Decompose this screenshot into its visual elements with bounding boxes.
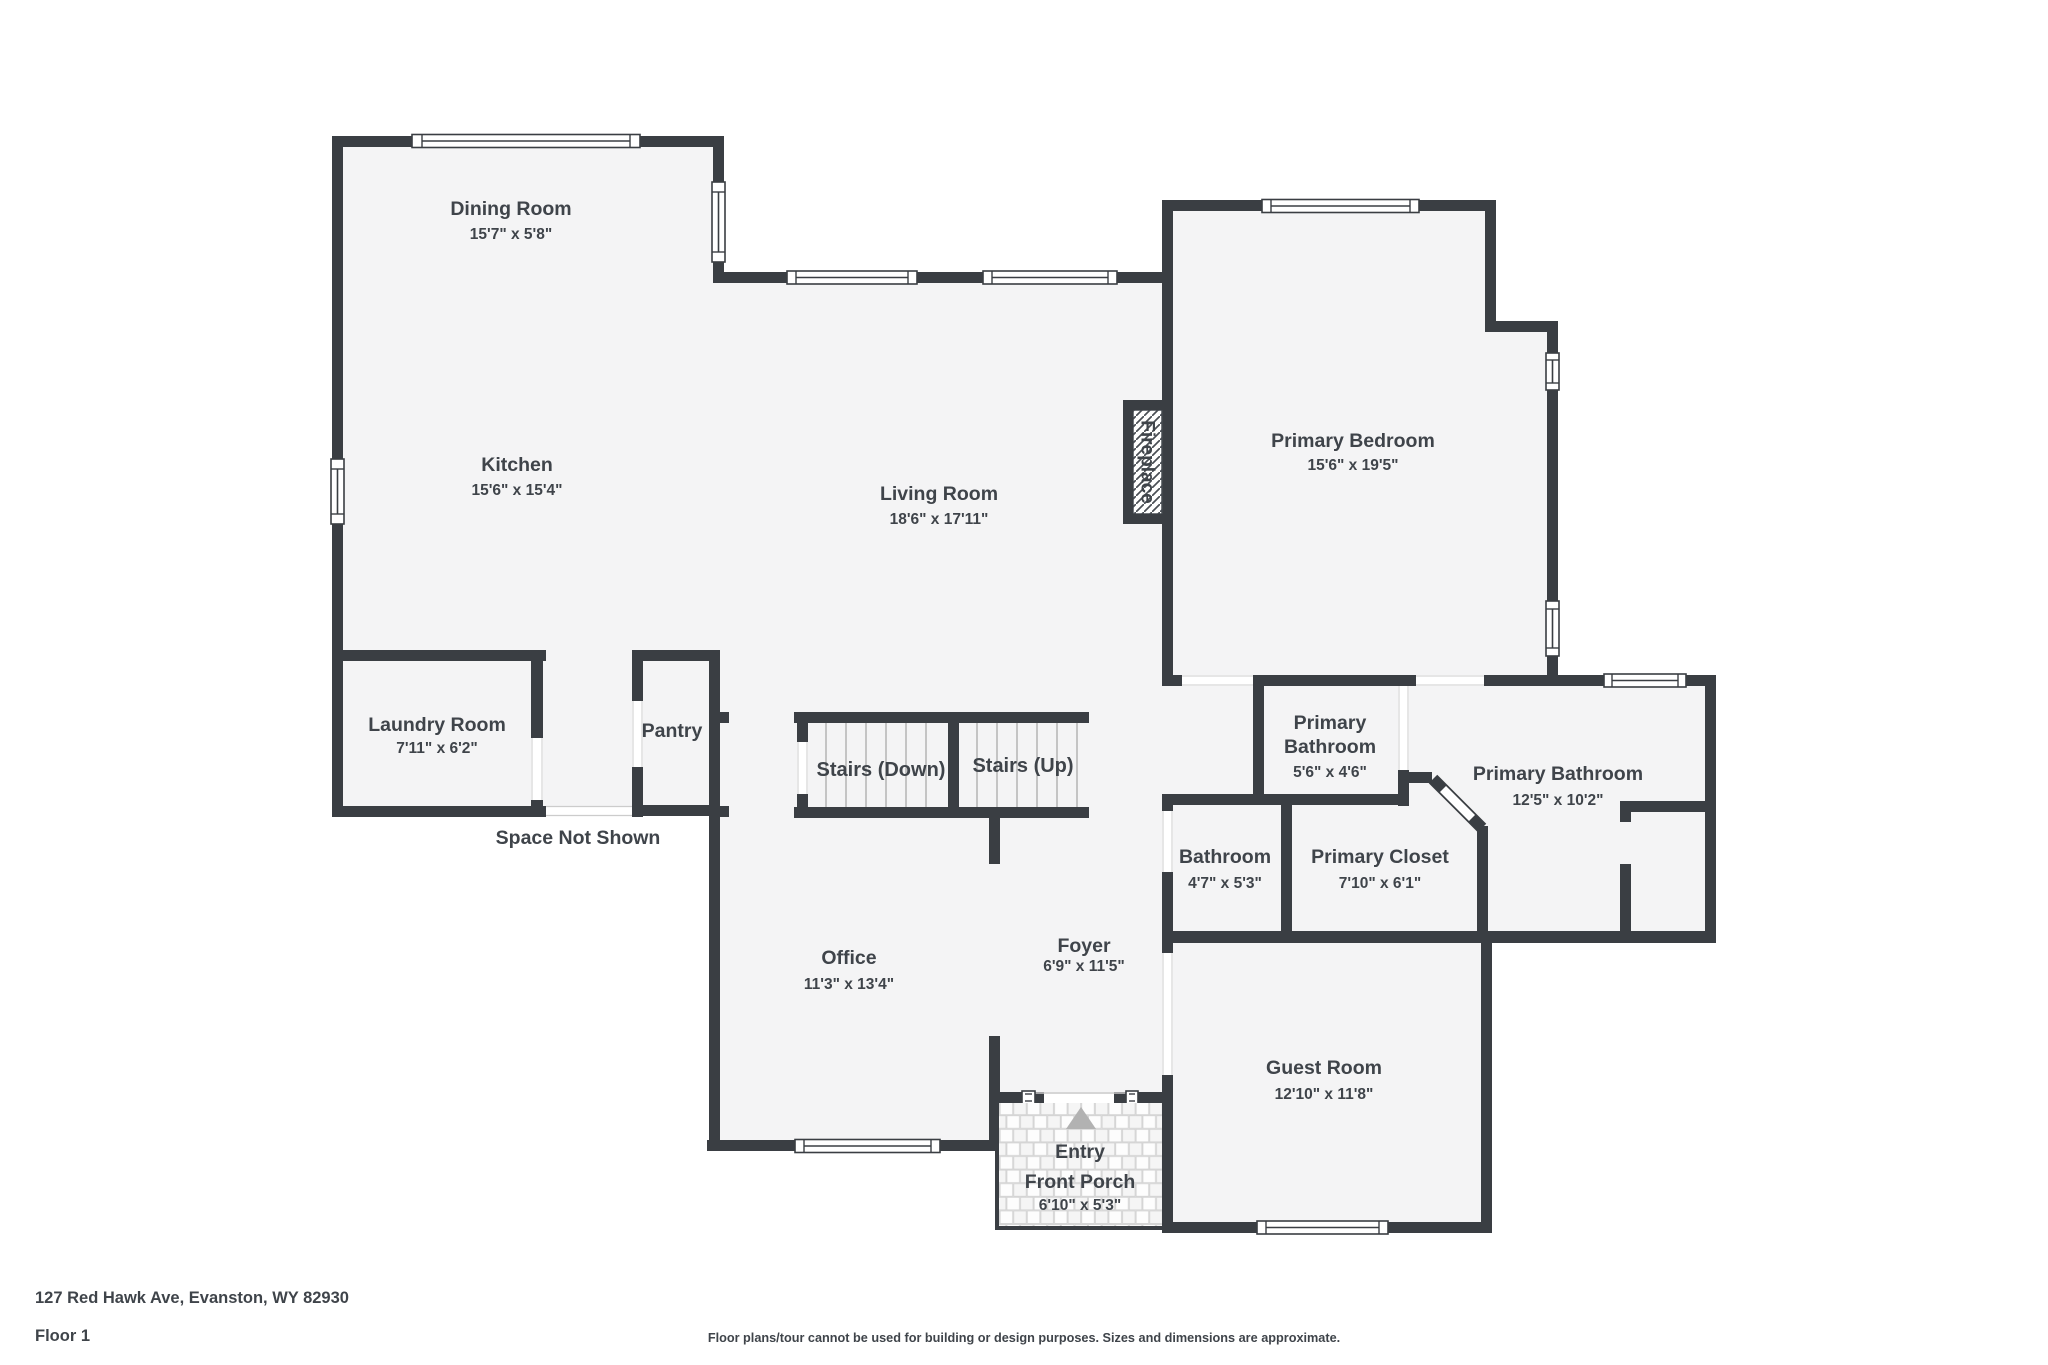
- svg-text:Living Room: Living Room: [880, 483, 998, 505]
- svg-text:Primary: Primary: [1294, 712, 1367, 734]
- svg-text:Primary Bathroom: Primary Bathroom: [1473, 763, 1643, 785]
- svg-text:7'11" x 6'2": 7'11" x 6'2": [396, 740, 478, 757]
- svg-text:7'10" x 6'1": 7'10" x 6'1": [1339, 875, 1421, 892]
- svg-text:15'6" x 19'5": 15'6" x 19'5": [1307, 457, 1398, 474]
- svg-text:Dining Room: Dining Room: [450, 198, 571, 220]
- svg-text:Pantry: Pantry: [642, 720, 703, 742]
- svg-text:Stairs (Down): Stairs (Down): [817, 759, 946, 781]
- svg-text:Space Not Shown: Space Not Shown: [496, 827, 661, 849]
- svg-text:6'10" x 5'3": 6'10" x 5'3": [1039, 1197, 1121, 1214]
- svg-text:Bathroom: Bathroom: [1284, 736, 1376, 758]
- svg-text:Fireplace: Fireplace: [1137, 420, 1158, 503]
- svg-text:12'5" x 10'2": 12'5" x 10'2": [1512, 792, 1603, 809]
- svg-text:Guest Room: Guest Room: [1266, 1057, 1382, 1079]
- svg-text:Primary Bedroom: Primary Bedroom: [1271, 430, 1435, 452]
- svg-text:12'10" x 11'8": 12'10" x 11'8": [1275, 1086, 1374, 1103]
- svg-text:Foyer: Foyer: [1057, 935, 1111, 957]
- svg-text:Bathroom: Bathroom: [1179, 846, 1271, 868]
- svg-text:11'3" x 13'4": 11'3" x 13'4": [804, 976, 894, 993]
- svg-text:Front Porch: Front Porch: [1025, 1171, 1136, 1193]
- svg-text:Entry: Entry: [1055, 1141, 1105, 1163]
- svg-text:6'9" x 11'5": 6'9" x 11'5": [1043, 958, 1125, 975]
- svg-text:5'6" x 4'6": 5'6" x 4'6": [1293, 764, 1367, 781]
- svg-text:Floor 1: Floor 1: [35, 1327, 90, 1345]
- svg-text:Office: Office: [821, 947, 876, 969]
- svg-text:4'7" x 5'3": 4'7" x 5'3": [1188, 875, 1262, 892]
- svg-text:Kitchen: Kitchen: [481, 454, 553, 476]
- svg-text:15'6" x 15'4": 15'6" x 15'4": [471, 482, 562, 499]
- svg-text:18'6" x 17'11": 18'6" x 17'11": [890, 511, 989, 528]
- svg-text:Floor plans/tour cannot be use: Floor plans/tour cannot be used for buil…: [708, 1331, 1340, 1345]
- svg-text:127 Red Hawk Ave, Evanston, WY: 127 Red Hawk Ave, Evanston, WY 82930: [35, 1289, 349, 1307]
- svg-text:Stairs (Up): Stairs (Up): [972, 755, 1073, 777]
- svg-text:15'7" x 5'8": 15'7" x 5'8": [470, 226, 552, 243]
- svg-text:Laundry Room: Laundry Room: [368, 714, 506, 736]
- svg-text:Primary Closet: Primary Closet: [1311, 846, 1449, 868]
